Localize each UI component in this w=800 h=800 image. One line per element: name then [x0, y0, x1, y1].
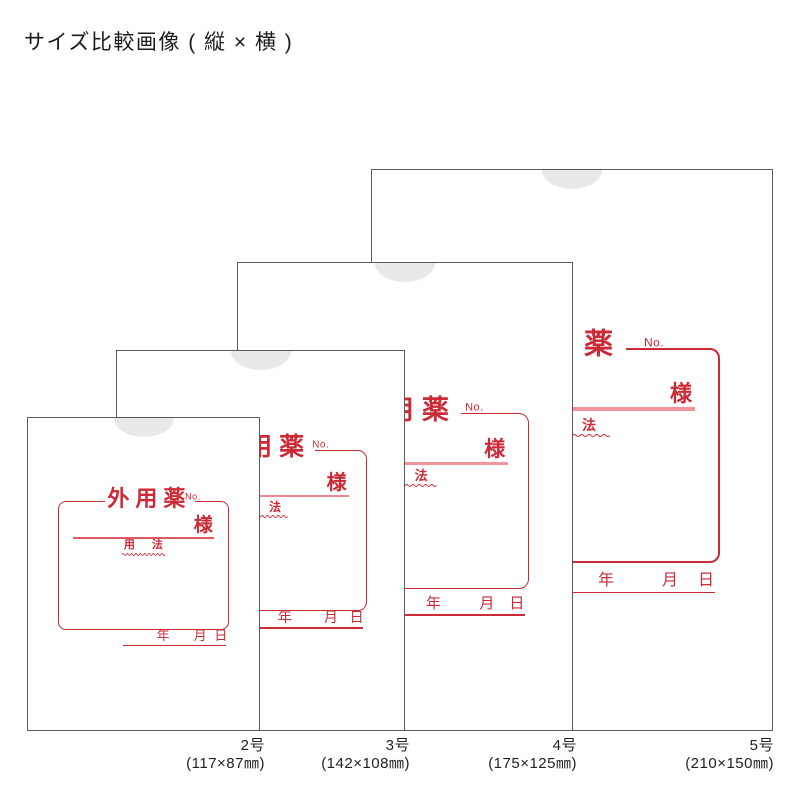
- thumb-notch-icon: [375, 262, 435, 282]
- print-usage-label: 用法: [124, 540, 180, 551]
- size-name: 5号: [685, 737, 774, 755]
- print-title-gaiyoyaku: 外用薬: [105, 488, 195, 510]
- print-date-month: 月: [662, 573, 678, 589]
- print-no-label: No.: [465, 402, 484, 413]
- print-no-label: No.: [312, 440, 329, 450]
- size-name: 3号: [321, 737, 410, 755]
- thumb-notch-icon: [542, 169, 602, 189]
- print-no-label: No.: [185, 493, 201, 502]
- print-sama-label: 様: [194, 516, 213, 535]
- print-sama-label: 様: [327, 473, 347, 493]
- thumb-notch-icon: [114, 417, 174, 437]
- size-dimensions: (210×150㎜): [685, 755, 774, 773]
- print-date-year: 年: [278, 610, 292, 624]
- size-label-4gou: 4号 (175×125㎜): [488, 737, 577, 772]
- print-date-day: 日: [350, 610, 364, 624]
- size-name: 4号: [488, 737, 577, 755]
- print-date-month: 月: [479, 596, 494, 611]
- size-label-5gou: 5号 (210×150㎜): [685, 737, 774, 772]
- print-date-year: 年: [426, 596, 441, 611]
- print-date-year: 年: [598, 573, 614, 589]
- print-date-line: [123, 645, 226, 647]
- print-date-day: 日: [214, 629, 227, 642]
- size-label-2gou: 2号 (117×87㎜): [186, 737, 265, 772]
- envelope-size-2gou: 外用薬 No. 様 用法 年 月 日: [27, 417, 260, 731]
- print-usage-wavy-line: [122, 552, 165, 556]
- page-title: サイズ比較画像 ( 縦 × 横 ): [24, 26, 293, 56]
- size-comparison-canvas: サイズ比較画像 ( 縦 × 横 ) 外用薬 No. 様 用法 年 月 日 外用薬…: [0, 0, 800, 800]
- print-date-month: 月: [324, 610, 338, 624]
- size-dimensions: (175×125㎜): [488, 755, 577, 773]
- print-sama-label: 様: [670, 383, 692, 405]
- print-no-label: No.: [644, 336, 664, 348]
- thumb-notch-icon: [231, 350, 291, 370]
- print-date-year: 年: [157, 629, 170, 642]
- print-sama-label: 様: [484, 439, 505, 460]
- size-name: 2号: [186, 737, 265, 755]
- print-date-month: 月: [194, 629, 207, 642]
- size-dimensions: (142×108㎜): [321, 755, 410, 773]
- print-date-day: 日: [698, 573, 714, 589]
- print-date-day: 日: [509, 596, 524, 611]
- size-label-3gou: 3号 (142×108㎜): [321, 737, 410, 772]
- size-dimensions: (117×87㎜): [186, 755, 265, 773]
